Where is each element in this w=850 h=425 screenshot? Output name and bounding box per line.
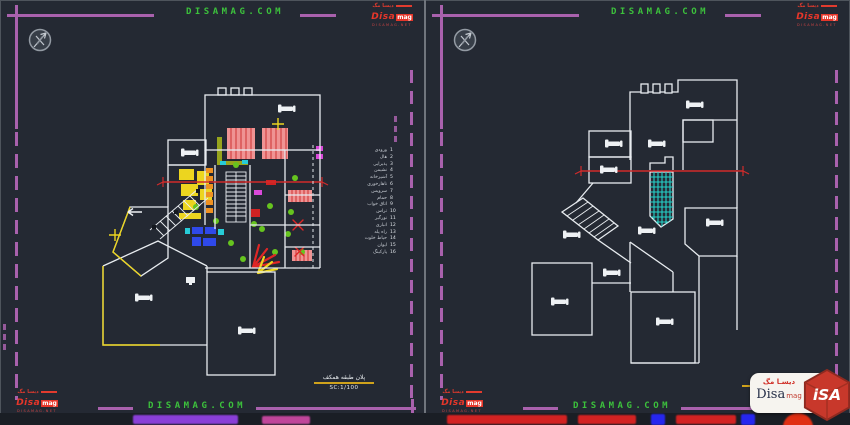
roof-plan-drawing <box>425 0 850 425</box>
legend-label: ایوان <box>377 243 387 250</box>
legend-label: هال <box>380 155 387 162</box>
mini-logo-en: Disa <box>796 12 820 22</box>
cut-banner-text-red <box>578 415 636 424</box>
site-url-bottom: DISAMAG.COM <box>537 401 707 411</box>
legend-num: 7 <box>390 189 399 196</box>
svg-text:iSA: iSA <box>813 386 841 404</box>
room-legend: ورودی1 هال2 پذیرایی3 نشیمن4 آشپزخانه5 نا… <box>333 148 399 257</box>
sheet-ground-floor: DISAMAG.COM DISAMAG.COM ديسا مگ Disamag … <box>0 0 425 425</box>
frame-line <box>440 5 443 129</box>
sheet-divider <box>424 0 426 425</box>
legend-label: پارکینگ <box>373 250 387 257</box>
legend-row: پارکینگ16 <box>333 250 399 257</box>
mini-logo-en: Disa <box>16 398 40 408</box>
legend-num: 11 <box>390 216 399 223</box>
legend-row: ورودی1 <box>333 148 399 155</box>
legend-row: تراس10 <box>333 209 399 216</box>
legend-num: 6 <box>390 182 399 189</box>
legend-label: نورگیر <box>375 216 387 223</box>
mini-logo-site: DISAMAG.NET <box>367 23 417 27</box>
legend-label: تراس <box>376 209 387 216</box>
edge-ticks <box>3 324 6 350</box>
frame-line-dashed <box>15 132 18 400</box>
mini-logo-site: DISAMAG.NET <box>792 23 842 27</box>
sheet-title-block: پلان طبقه همکف SC:1/100 <box>314 374 374 391</box>
sheet-roof-plan: DISAMAG.COM DISAMAG.COM ديسا مگ Disamag … <box>425 0 850 425</box>
stair-ladder <box>226 172 246 222</box>
arrow-symbol <box>128 209 142 216</box>
legend-label: حیاط خلوت <box>365 236 387 243</box>
legend-num: 15 <box>390 243 399 250</box>
watermark-en-text: Disa <box>756 387 785 402</box>
watermark-suffix: mag <box>786 392 802 400</box>
isa-cube-logo: iSA <box>802 366 850 422</box>
frame-line-dashed <box>440 132 443 400</box>
edge-ticks <box>394 116 397 142</box>
dashed-boundary <box>278 145 313 268</box>
site-url-bottom: DISAMAG.COM <box>112 401 282 411</box>
legend-label: راه پله <box>374 230 387 237</box>
legend-num: 5 <box>390 175 399 182</box>
legend-label: ناهارخوری <box>367 182 387 189</box>
roof-stair-grid <box>650 172 673 227</box>
legend-label: ورودی <box>375 148 387 155</box>
roof-stair-diagonal <box>567 202 614 237</box>
legend-row: انباری12 <box>333 223 399 230</box>
legend-num: 16 <box>390 250 399 257</box>
frame-line <box>432 14 579 17</box>
legend-num: 2 <box>390 155 399 162</box>
mini-logo-bar <box>396 5 412 7</box>
frame-line <box>15 5 18 129</box>
sheet-title: پلان طبقه همکف <box>314 374 374 381</box>
legend-row: نورگیر11 <box>333 216 399 223</box>
mini-logo-en: Disa <box>441 398 465 408</box>
cut-banner-text-red <box>447 415 567 424</box>
legend-label: انباری <box>376 223 387 230</box>
cad-sheet-montage: DISAMAG.COM DISAMAG.COM ديسا مگ Disamag … <box>0 0 850 425</box>
legend-row: آشپزخانه5 <box>333 175 399 182</box>
disamag-mini-logo: ديسا مگ Disamag DISAMAG.NET <box>12 389 62 413</box>
disamag-mini-logo: ديسا مگ Disamag DISAMAG.NET <box>437 389 487 413</box>
legend-num: 10 <box>390 209 399 216</box>
disamag-mini-logo: ديسا مگ Disamag DISAMAG.NET <box>367 3 417 27</box>
disamag-watermark: دیسـا مگ Disamag iSA <box>750 370 850 420</box>
legend-row: ایوان15 <box>333 243 399 250</box>
sheet-scale: SC:1/100 <box>314 385 374 391</box>
mini-logo-suffix: mag <box>396 14 413 21</box>
north-arrow-icon <box>27 27 53 53</box>
legend-num: 1 <box>390 148 399 155</box>
cut-banner-text-magenta <box>262 416 310 424</box>
title-underline <box>314 382 374 384</box>
north-arrow-icon <box>452 27 478 53</box>
cut-banner-text-purple <box>133 415 238 424</box>
legend-row: ناهارخوری6 <box>333 182 399 189</box>
legend-label: پذیرایی <box>373 162 387 169</box>
mini-logo-bar <box>821 5 837 7</box>
frame-line-dashed <box>410 70 413 400</box>
mini-logo-en: Disa <box>371 12 395 22</box>
disamag-mini-logo: ديسا مگ Disamag DISAMAG.NET <box>792 3 842 27</box>
mini-logo-bar <box>41 391 57 393</box>
mini-logo-suffix: mag <box>41 400 58 407</box>
legend-num: 12 <box>390 223 399 230</box>
cut-banner-text-red <box>676 415 736 424</box>
legend-label: اتاق خواب <box>367 202 387 209</box>
cut-banner-icon-blue <box>651 414 665 425</box>
frame-line-dashed <box>835 70 838 400</box>
legend-row: سرویس7 <box>333 189 399 196</box>
frame-line <box>7 14 154 17</box>
legend-row: هال2 <box>333 155 399 162</box>
watermark-en: Disamag <box>750 387 808 404</box>
legend-label: آشپزخانه <box>370 175 387 182</box>
mini-logo-suffix: mag <box>821 14 838 21</box>
site-url-top: DISAMAG.COM <box>575 7 745 17</box>
mini-logo-suffix: mag <box>466 400 483 407</box>
mini-logo-bar <box>466 391 482 393</box>
watermark-fa: دیسـا مگ <box>750 378 808 387</box>
legend-label: سرویس <box>371 189 387 196</box>
site-url-top: DISAMAG.COM <box>150 7 320 17</box>
